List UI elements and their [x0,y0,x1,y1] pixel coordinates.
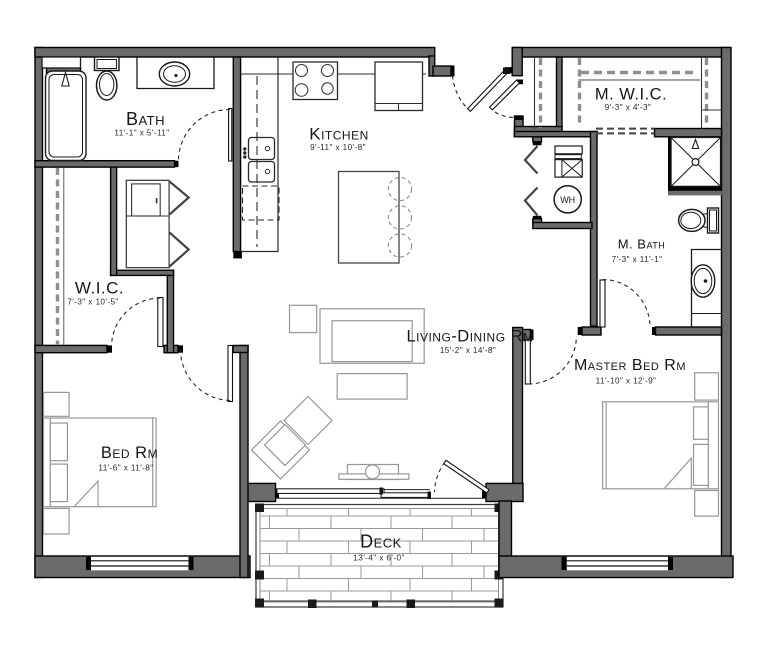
svg-text:Bath: Bath [126,109,165,129]
svg-text:11'-10" x 12'-9": 11'-10" x 12'-9" [596,377,657,386]
svg-text:Master Bed Rm: Master Bed Rm [574,357,686,374]
svg-text:M. W.I.C.: M. W.I.C. [595,86,667,104]
svg-text:7'-3" x 11'-1": 7'-3" x 11'-1" [612,255,663,264]
svg-text:Deck: Deck [360,532,402,552]
svg-text:9'-11" x 10'-8": 9'-11" x 10'-8" [310,143,366,152]
svg-text:Kitchen: Kitchen [309,125,369,144]
svg-text:7'-3" x 10'-5": 7'-3" x 10'-5" [67,298,118,307]
svg-text:WH: WH [560,195,575,205]
svg-text:15'-2" x 14'-8": 15'-2" x 14'-8" [440,346,496,355]
svg-text:Living-Dining Rm: Living-Dining Rm [406,328,533,346]
svg-text:W.I.C.: W.I.C. [75,279,124,298]
svg-text:11'-1" x 5'-11": 11'-1" x 5'-11" [114,129,169,138]
svg-text:9'-3" x 4'-3": 9'-3" x 4'-3" [605,103,651,112]
svg-text:M. Bath: M. Bath [618,237,666,252]
svg-text:13'-4" x 6'-0": 13'-4" x 6'-0" [353,554,404,563]
svg-text:Bed Rm: Bed Rm [101,444,158,462]
svg-text:11'-6" x 11'-8": 11'-6" x 11'-8" [98,464,153,473]
